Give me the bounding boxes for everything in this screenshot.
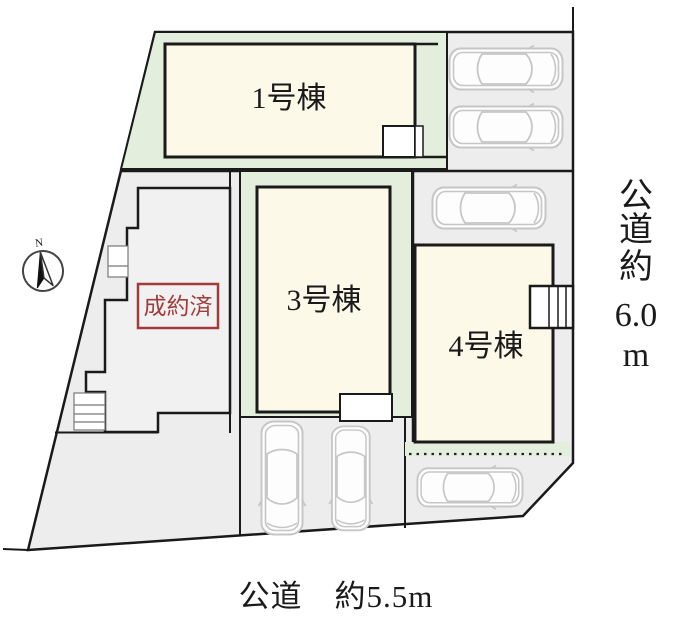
boundary-extension-bottom-left [3, 549, 28, 550]
road-right-value: 6.0 [615, 297, 658, 334]
site-plan: 1号棟 3号棟 4号棟 成約済 N 公 道 約 6.0 m 公道 約5.5m [0, 0, 675, 626]
car-icon [450, 46, 563, 93]
car-icon [450, 104, 563, 151]
road-label-right: 公 道 約 6.0 m [615, 178, 658, 374]
car-icon [433, 185, 546, 232]
road-label-bottom: 公道 約5.5m [239, 579, 434, 614]
building-sold-porch [108, 246, 128, 277]
car-icon [259, 422, 306, 535]
north-arrow-icon: N [18, 235, 65, 294]
label-unit3: 3号棟 [287, 284, 362, 317]
road-right-char: 約 [619, 248, 653, 286]
car-icon [417, 466, 522, 510]
road-right-char: 道 [619, 211, 653, 249]
sold-badge-label: 成約済 [144, 294, 213, 319]
site-plan-drawing: 1号棟 3号棟 4号棟 成約済 N 公 道 約 6.0 m 公道 約5.5m [0, 0, 675, 626]
road-right-char: 公 [619, 178, 653, 215]
building-sold-stairs [74, 393, 105, 430]
building-unit1-entrance [383, 126, 415, 157]
label-unit1: 1号棟 [252, 82, 327, 115]
building-unit1-entrance-step [415, 126, 423, 157]
building-unit3-entrance [340, 394, 392, 421]
label-unit4: 4号棟 [449, 330, 524, 363]
road-right-unit: m [623, 337, 649, 374]
car-icon [329, 426, 372, 530]
north-label: N [34, 237, 44, 250]
